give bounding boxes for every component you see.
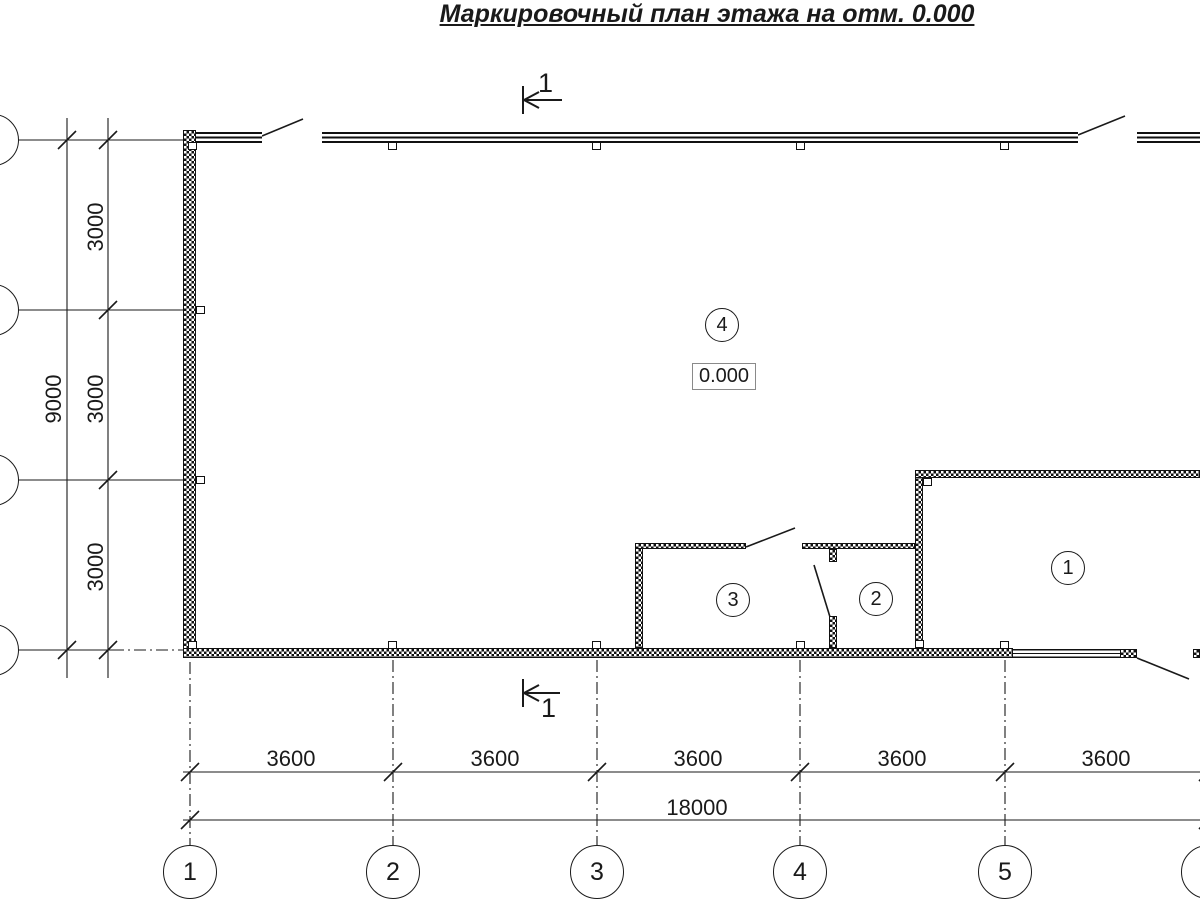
column-mark [796,142,805,150]
column-mark [923,478,932,486]
top-window-band-2 [322,132,1078,143]
dim-vertical-segment-2: 3000 [83,359,109,439]
room-3-bubble: 3 [716,583,750,617]
elevation-value: 0.000 [699,365,749,388]
room-4-label: 4 [716,314,727,337]
exterior-wall-left [183,130,196,658]
room3-wall-left [635,543,643,648]
bottom-door-pier-right [1193,649,1200,658]
room1-wall-left [915,470,923,648]
top-window-band-3 [1137,132,1200,143]
dim-horizontal-segment-4: 3600 [862,746,942,772]
room-2-bubble: 2 [859,582,893,616]
grid-column-label-3: 3 [590,858,604,887]
room-3-label: 3 [727,589,738,612]
room-2-label: 2 [870,588,881,611]
top-window-band-1 [196,132,262,143]
column-mark [388,142,397,150]
grid-column-bubble-3: 3 [570,845,624,899]
column-mark [796,641,805,649]
column-mark [592,142,601,150]
grid-column-bubble-1: 1 [163,845,217,899]
grid-column-label-5: 5 [998,858,1012,887]
column-mark [188,641,197,649]
elevation-mark: 0.000 [692,363,756,390]
room-1-label: 1 [1062,557,1073,580]
grid-column-bubble-2: 2 [366,845,420,899]
dim-horizontal-segment-5: 3600 [1066,746,1146,772]
room3-wall-top [635,543,746,549]
room2-door-jamb-bottom [829,616,837,648]
grid-column-bubble-4: 4 [773,845,827,899]
section-mark-bottom-label: 1 [541,693,556,724]
room1-wall-top [915,470,1200,478]
dim-vertical-segment-1: 3000 [83,187,109,267]
column-mark [196,306,205,314]
room2-door-jamb-top [829,549,837,562]
dim-horizontal-segment-3: 3600 [658,746,738,772]
dim-horizontal-segment-2: 3600 [455,746,535,772]
bottom-door-pier-left [1120,649,1137,658]
column-mark [188,142,197,150]
column-mark [388,641,397,649]
bottom-window-band [1013,649,1120,658]
column-mark [592,641,601,649]
room-4-bubble: 4 [705,308,739,342]
exterior-wall-bottom [183,648,1013,658]
dim-horizontal-segment-1: 3600 [251,746,331,772]
dim-vertical-segment-3: 3000 [83,527,109,607]
room2-wall-top [802,543,915,549]
grid-column-label-1: 1 [183,858,197,887]
grid-column-label-2: 2 [386,858,400,887]
dim-vertical-total: 9000 [41,359,67,439]
column-mark [1000,641,1009,649]
column-mark [1000,142,1009,150]
column-mark [196,476,205,484]
column-mark [915,640,924,648]
section-mark-top-label: 1 [538,68,553,99]
dim-horizontal-total: 18000 [647,795,747,821]
room-1-bubble: 1 [1051,551,1085,585]
grid-column-label-4: 4 [793,858,807,887]
grid-column-bubble-5: 5 [978,845,1032,899]
